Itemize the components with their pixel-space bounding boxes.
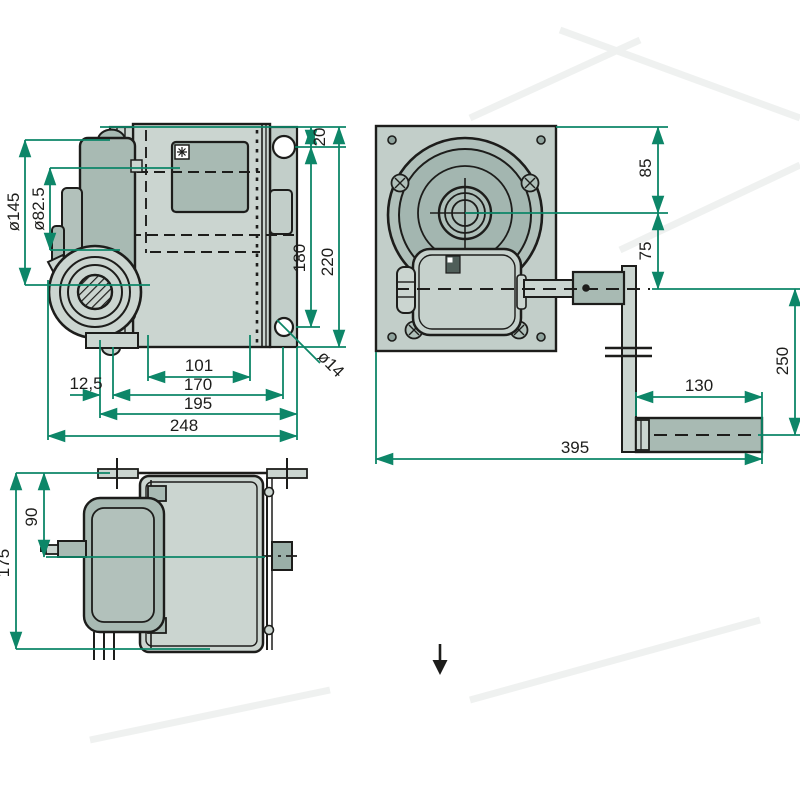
front-gearbox <box>413 249 521 335</box>
housing-tab <box>86 333 138 348</box>
direction-arrow <box>433 644 448 675</box>
dim-label-220: 220 <box>318 248 337 276</box>
housing-bump <box>102 348 120 355</box>
dim-label-248: 248 <box>170 416 198 435</box>
side-view: ø145 ø82.5 20 180 220 ø14 101 12,5 170 1… <box>4 124 348 440</box>
cable-guide-ribs <box>397 267 415 313</box>
dim-label-175: 175 <box>0 549 13 577</box>
down-arrow-icon <box>433 660 448 675</box>
star-icon <box>177 147 187 157</box>
gearbox-square-dot <box>448 258 453 263</box>
dim-label-85: 85 <box>636 159 655 178</box>
dim-label-195: 195 <box>184 394 212 413</box>
crank-sleeve <box>573 272 624 304</box>
sleeve-pin <box>582 284 590 292</box>
dim-label-12-5: 12,5 <box>69 374 102 393</box>
side-mount-plate <box>270 127 297 347</box>
plate-notch <box>270 190 292 234</box>
grip-cap <box>636 420 649 450</box>
dim-label-130: 130 <box>685 376 713 395</box>
dim-label-101: 101 <box>185 356 213 375</box>
bottom-gearbox-inner <box>92 508 154 622</box>
front-view: 85 75 250 130 395 <box>376 126 800 464</box>
left-shaft-point <box>40 547 46 552</box>
dim-label-250: 250 <box>773 347 792 375</box>
dim-label-180: 180 <box>290 244 309 272</box>
winch-technical-drawing: ø145 ø82.5 20 180 220 ø14 101 12,5 170 1… <box>0 0 800 800</box>
dim-label-170: 170 <box>184 375 212 394</box>
dim-label-motor-diameter: ø82.5 <box>29 187 48 230</box>
gearbox-top-lug <box>131 160 142 172</box>
dim-label-395: 395 <box>561 438 589 457</box>
dim-label-hole-diameter: ø14 <box>314 347 348 381</box>
left-shaft-stub <box>58 541 86 557</box>
dim-label-flange-diameter: ø145 <box>4 193 23 232</box>
dim-label-20: 20 <box>310 128 329 147</box>
plate-hole-top <box>273 136 295 158</box>
edge-screw-top <box>265 488 274 497</box>
edge-screw-bottom <box>265 626 274 635</box>
crank-shaft-hatched <box>78 275 112 309</box>
cable-lines <box>94 632 114 660</box>
dim-label-75: 75 <box>636 242 655 261</box>
left-shaft-tip <box>46 545 58 554</box>
drawing-canvas: ø145 ø82.5 20 180 220 ø14 101 12,5 170 1… <box>0 0 800 800</box>
bottom-view: 90 175 <box>0 458 307 660</box>
dim-label-90: 90 <box>22 508 41 527</box>
